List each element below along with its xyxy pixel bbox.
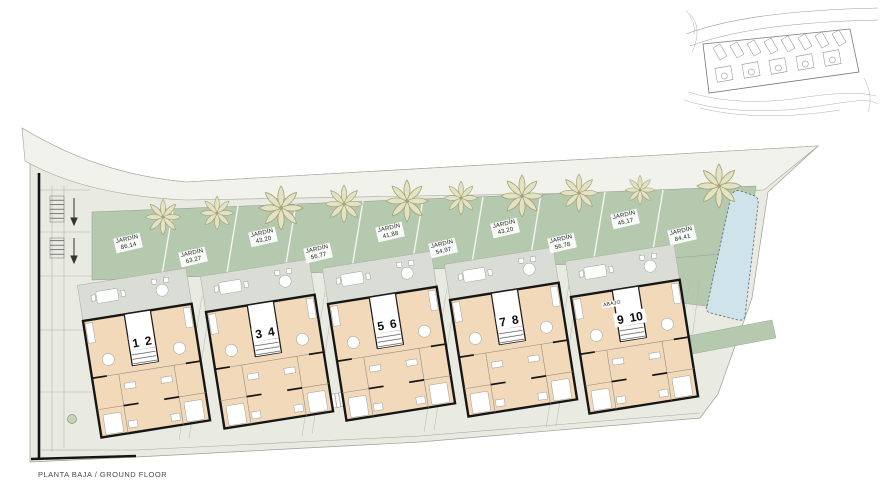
unit-number-1: 1 xyxy=(131,336,140,351)
tree-symbol xyxy=(697,164,741,208)
building-7-8 xyxy=(444,247,577,416)
building-9-10 xyxy=(565,244,698,413)
building-5-6 xyxy=(322,251,455,420)
floor-title: PLANTA BAJA / GROUND FLOOR xyxy=(38,470,167,479)
unit-number-4: 4 xyxy=(267,324,276,339)
tree-symbol xyxy=(145,199,181,235)
unit-number-9: 9 xyxy=(616,312,625,327)
tree-symbol xyxy=(259,186,303,230)
building-1-2 xyxy=(77,268,210,437)
unit-number-2: 2 xyxy=(144,333,153,348)
tree-symbol xyxy=(501,175,543,217)
tree-symbol xyxy=(444,181,478,215)
unit-number-8: 8 xyxy=(511,312,520,327)
tree-symbol xyxy=(325,185,363,223)
unit-number-5: 5 xyxy=(376,319,385,334)
tree-symbol xyxy=(625,175,654,204)
unit-number-6: 6 xyxy=(389,316,398,331)
tree-symbol xyxy=(386,180,428,222)
location-key-map xyxy=(684,8,878,116)
tree-symbol xyxy=(200,196,234,230)
unit-number-3: 3 xyxy=(254,327,263,342)
unit-number-7: 7 xyxy=(498,315,507,330)
unit-number-10: 10 xyxy=(628,309,644,325)
building-3-4 xyxy=(200,259,333,428)
tree-symbol xyxy=(560,174,598,212)
ground-floor-site-plan: JARDÍN 86,14 JARDÍN 63,27 JARDÍN 43,20 J… xyxy=(0,0,882,504)
